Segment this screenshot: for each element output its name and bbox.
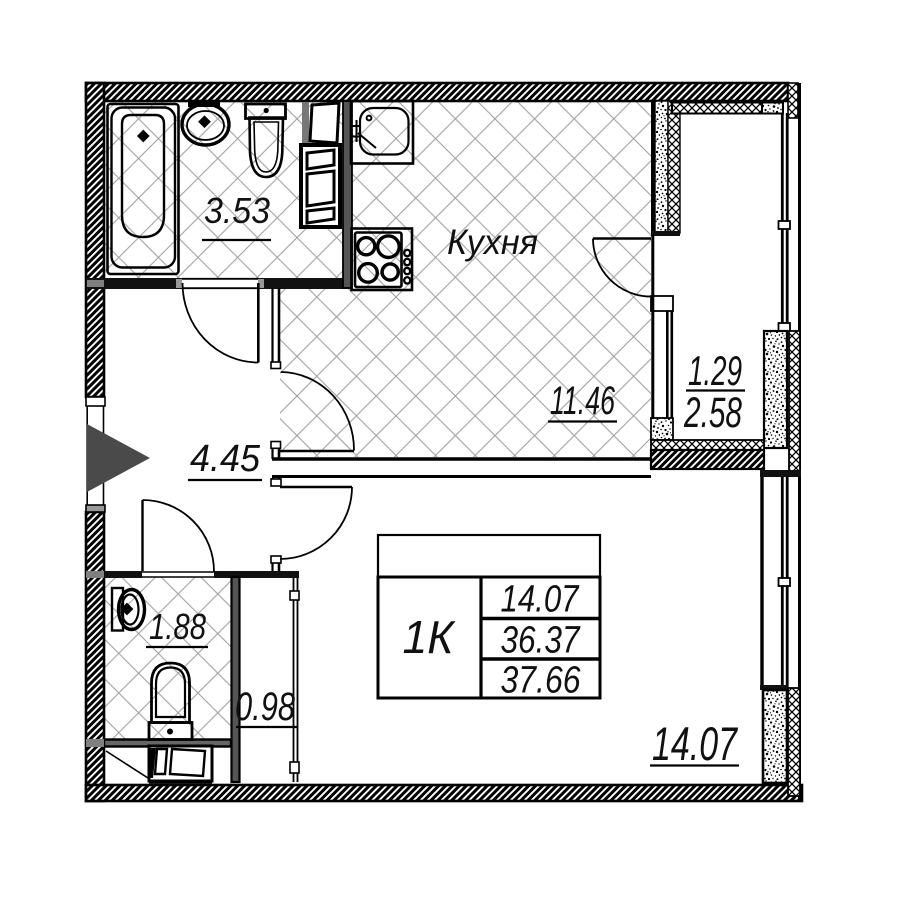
svg-text:36.37: 36.37 (501, 620, 582, 662)
svg-text:37.66: 37.66 (501, 660, 582, 702)
svg-text:14.07: 14.07 (652, 717, 738, 770)
svg-text:1К: 1К (403, 611, 457, 663)
svg-text:4.45: 4.45 (190, 438, 261, 480)
svg-text:2.58: 2.58 (683, 389, 742, 437)
svg-text:11.46: 11.46 (550, 379, 615, 423)
svg-text:1.88: 1.88 (149, 606, 206, 647)
svg-text:0.98: 0.98 (235, 685, 296, 729)
svg-text:14.07: 14.07 (501, 579, 581, 621)
svg-text:3.53: 3.53 (204, 190, 270, 231)
svg-text:Кухня: Кухня (447, 223, 538, 262)
svg-text:1.29: 1.29 (688, 347, 742, 394)
